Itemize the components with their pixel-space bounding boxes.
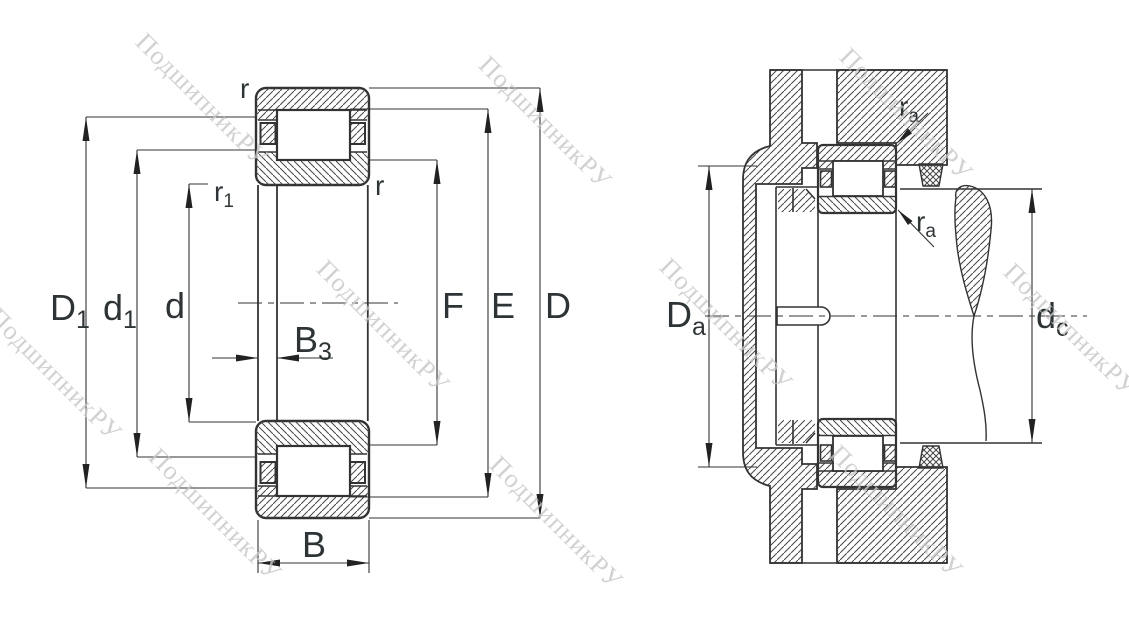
technical-drawing-canvas: D1 d1 d F E D B3 B r r1 r [0,0,1129,632]
bearing-bottom-section [256,421,369,518]
cage-left [261,123,276,144]
right-view-mounting-section: Da dc ra ra [666,70,1087,563]
dim-label-ra-bottom: ra [916,206,936,242]
bearing-top-section [256,88,369,185]
dim-label-Da: Da [666,294,706,341]
dim-label-r-right: r [375,170,384,201]
roller [277,110,350,160]
dim-label-r-top: r [240,73,249,104]
bearing-drawing-page: D1 d1 d F E D B3 B r r1 r [0,0,1129,632]
dim-label-d: d [165,285,185,326]
dim-label-B: B [302,524,326,565]
cage-right [350,123,365,144]
dim-label-E: E [491,285,515,326]
seal-ring-bottom [919,446,943,468]
dim-label-D1: D1 [50,287,90,334]
shaft-break-line [972,316,986,441]
dim-label-B3: B3 [294,319,332,366]
shaft [777,186,1042,443]
dim-label-d1: d1 [103,287,137,334]
left-view-bearing-section: D1 d1 d F E D B3 B r r1 r [50,73,571,573]
dim-label-dc: dc [1036,295,1069,342]
shaft-break-section [955,186,992,316]
inner-ring-hatch [256,160,369,185]
seal-ring-top [919,164,943,186]
dim-label-D: D [545,285,571,326]
mounted-bearing-top [818,145,896,213]
dim-label-F: F [442,285,464,326]
outer-ring-hatch [256,88,369,110]
mounted-bearing-bottom [818,419,896,487]
dim-label-r1: r1 [214,176,234,212]
